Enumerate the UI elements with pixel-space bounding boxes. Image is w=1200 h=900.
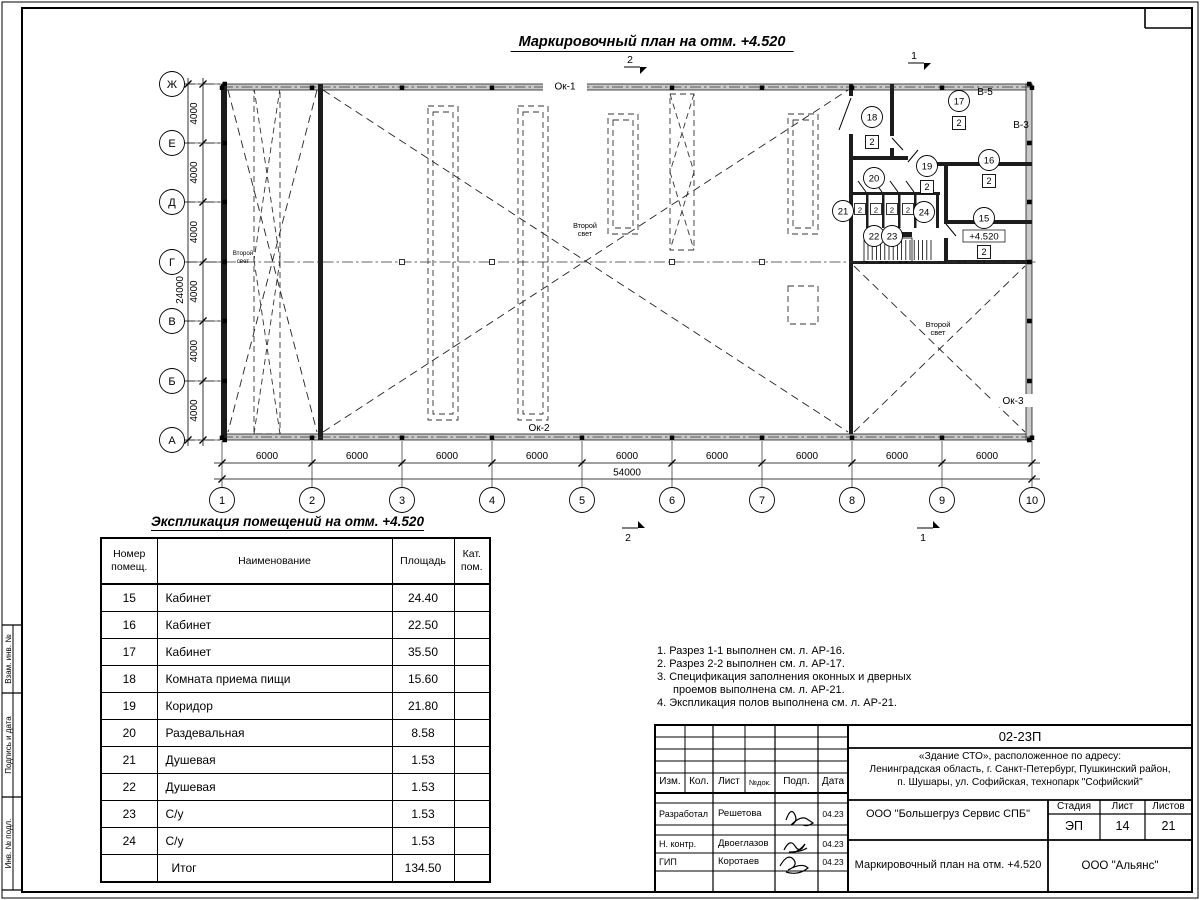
role-label: ГИП bbox=[656, 853, 715, 871]
room-number: 21 bbox=[838, 207, 849, 218]
sheet-value: 14 bbox=[1100, 819, 1145, 835]
role-name: Решетова bbox=[715, 803, 776, 825]
note-item: 2. Разрез 2-2 выполнен см. л. АР-17. bbox=[657, 658, 929, 671]
axis-label: 2 bbox=[309, 495, 315, 507]
room-number-cell: 17 bbox=[101, 639, 157, 666]
room-name-cell: Душевая bbox=[157, 747, 392, 774]
equipment-dashed-outlines bbox=[254, 88, 818, 434]
schedule-col-header: Номерпомещ. bbox=[101, 538, 157, 584]
column-marker bbox=[400, 86, 405, 91]
dim-label: 6000 bbox=[256, 451, 279, 462]
axis-label: 9 bbox=[939, 495, 945, 507]
room-schedule-table: Номерпомещ.НаименованиеПлощадьКат.пом. 1… bbox=[100, 537, 491, 883]
axis-label: 6 bbox=[669, 495, 675, 507]
section-mark-arrow bbox=[933, 521, 940, 528]
dim-label: 4000 bbox=[189, 220, 200, 243]
schedule-row: 19Коридор21.80 bbox=[101, 693, 490, 720]
dim-label: 6000 bbox=[886, 451, 909, 462]
section-mark-label: 2 bbox=[627, 54, 633, 66]
room-number-cell: 23 bbox=[101, 801, 157, 828]
room-number: 22 bbox=[869, 232, 880, 243]
dim-label: 4000 bbox=[189, 102, 200, 125]
axis-label: Г bbox=[169, 257, 175, 269]
column-marker bbox=[580, 436, 585, 441]
room-cat-cell bbox=[454, 801, 490, 828]
room-area-cell: 1.53 bbox=[392, 774, 454, 801]
column-marker bbox=[490, 436, 495, 441]
axis-label: Е bbox=[168, 138, 175, 150]
axis-label: Б bbox=[168, 376, 175, 388]
column-marker bbox=[310, 436, 315, 441]
room-cat-cell bbox=[454, 828, 490, 855]
window-label: Ок-2 bbox=[528, 423, 549, 434]
column-marker bbox=[1027, 438, 1032, 443]
room-area-cell: 24.40 bbox=[392, 584, 454, 612]
room-cat-cell bbox=[454, 720, 490, 747]
room-cat-cell bbox=[454, 639, 490, 666]
window-label: Ок-3 bbox=[1002, 396, 1023, 407]
col-list: Лист bbox=[713, 776, 745, 789]
room-number-cell bbox=[101, 855, 157, 883]
col-izm: Изм. bbox=[655, 776, 685, 789]
column-marker bbox=[1027, 260, 1032, 265]
room-name-cell: Душевая bbox=[157, 774, 392, 801]
room-name-cell: Комната приема пищи bbox=[157, 666, 392, 693]
column-marker bbox=[400, 436, 405, 441]
role-date: 04.23 bbox=[818, 835, 848, 853]
column-marker bbox=[760, 86, 765, 91]
room-category: 2 bbox=[874, 205, 878, 214]
window-label: Ок-1 bbox=[554, 82, 575, 93]
axis-label: 1 bbox=[219, 495, 225, 507]
axis-label: Д bbox=[168, 197, 176, 209]
dim-label: 4000 bbox=[189, 399, 200, 422]
schedule-col-header: Наименование bbox=[157, 538, 392, 584]
axis-label: А bbox=[168, 435, 176, 447]
room-area-cell: 1.53 bbox=[392, 747, 454, 774]
role-label: Н. контр. bbox=[656, 835, 715, 853]
role-name: Двоеглазов bbox=[715, 835, 776, 853]
room-number-cell: 19 bbox=[101, 693, 157, 720]
column-marker bbox=[223, 141, 228, 146]
column-marker-open bbox=[760, 260, 765, 265]
dim-total-label: 54000 bbox=[613, 468, 641, 479]
dim-label: 6000 bbox=[616, 451, 639, 462]
schedule-title: Экспликация помещений на отм. +4.520 bbox=[151, 514, 424, 531]
column-marker bbox=[940, 86, 945, 91]
room-area-cell: 1.53 bbox=[392, 801, 454, 828]
room-cat-cell bbox=[454, 774, 490, 801]
column-marker-open bbox=[400, 260, 405, 265]
room-number-cell: 15 bbox=[101, 584, 157, 612]
frame-side-label: Взам. инв. № bbox=[4, 627, 13, 691]
room-cat-cell bbox=[454, 666, 490, 693]
room-cat-cell bbox=[454, 584, 490, 612]
room-area-cell: 22.50 bbox=[392, 612, 454, 639]
section-mark-arrow bbox=[640, 67, 647, 74]
dim-label: 4000 bbox=[189, 339, 200, 362]
project-line-1: «Здание СТО», расположенное по адресу: bbox=[848, 751, 1192, 764]
room-number-cell: 16 bbox=[101, 612, 157, 639]
plan-title: Маркировочный план на отм. +4.520 bbox=[511, 34, 794, 52]
section-mark-label: 2 bbox=[625, 532, 631, 544]
schedule-row: 20Раздевальная8.58 bbox=[101, 720, 490, 747]
dim-label: 6000 bbox=[796, 451, 819, 462]
room-cat-cell bbox=[454, 747, 490, 774]
vent-label: В-5 bbox=[977, 87, 993, 98]
note-item: 4. Экспликация полов выполнена см. л. АР… bbox=[657, 697, 929, 710]
stage-label: Стадия bbox=[1048, 801, 1100, 814]
room-number: 23 bbox=[887, 232, 898, 243]
room-category: 2 bbox=[981, 247, 986, 257]
room-name-cell: Раздевальная bbox=[157, 720, 392, 747]
second-light-label: свет bbox=[237, 258, 250, 265]
axis-label: 8 bbox=[849, 495, 855, 507]
room-category: 2 bbox=[956, 118, 961, 128]
section-mark-arrow bbox=[638, 521, 645, 528]
room-category: 2 bbox=[858, 205, 862, 214]
room-area-cell: 1.53 bbox=[392, 828, 454, 855]
level-mark: +4.520 bbox=[969, 232, 998, 243]
schedule-col-header: Кат.пом. bbox=[454, 538, 490, 584]
col-kol: Кол. bbox=[685, 776, 713, 789]
column-marker bbox=[850, 436, 855, 441]
org-name: ООО "Альянс" bbox=[1048, 859, 1192, 873]
sheets-label: Листов bbox=[1145, 801, 1192, 814]
section-mark-label: 1 bbox=[911, 50, 917, 62]
column-marker bbox=[223, 260, 228, 265]
sheets-value: 21 bbox=[1145, 819, 1192, 835]
dim-label: 6000 bbox=[976, 451, 999, 462]
column-marker bbox=[223, 82, 228, 87]
axis-label: 5 bbox=[579, 495, 585, 507]
col-ndoc: №док. bbox=[745, 778, 775, 787]
axis-label: 7 bbox=[759, 495, 765, 507]
room-name-cell: С/у bbox=[157, 828, 392, 855]
room-name-cell: С/у bbox=[157, 801, 392, 828]
stage-value: ЭП bbox=[1048, 819, 1100, 835]
column-marker bbox=[223, 379, 228, 384]
role-name: Коротаев bbox=[715, 853, 776, 871]
signature-icon bbox=[780, 811, 813, 873]
project-line-2: Ленинградская область, г. Санкт-Петербур… bbox=[848, 764, 1192, 777]
column-marker bbox=[223, 438, 228, 443]
room-cat-cell bbox=[454, 693, 490, 720]
column-marker-open bbox=[490, 260, 495, 265]
frame-side-label: Инв. № подл. bbox=[4, 799, 13, 888]
column-marker bbox=[760, 436, 765, 441]
second-light-label: свет bbox=[930, 328, 946, 337]
schedule-row: 21Душевая1.53 bbox=[101, 747, 490, 774]
dim-label: 6000 bbox=[526, 451, 549, 462]
column-marker bbox=[310, 86, 315, 91]
drawing-sheet: 6000600060006000600060006000600060005400… bbox=[0, 0, 1200, 900]
doc-number: 02-23П bbox=[848, 729, 1192, 745]
schedule-row: 22Душевая1.53 bbox=[101, 774, 490, 801]
room-area-cell: 134.50 bbox=[392, 855, 454, 883]
column-marker bbox=[1027, 319, 1032, 324]
room-number-cell: 22 bbox=[101, 774, 157, 801]
schedule-header: Номерпомещ.НаименованиеПлощадьКат.пом. bbox=[101, 538, 490, 584]
room-number-cell: 21 bbox=[101, 747, 157, 774]
note-item: 3. Спецификация заполнения оконных и две… bbox=[657, 671, 929, 697]
column-marker bbox=[1027, 200, 1032, 205]
room-name-cell: Коридор bbox=[157, 693, 392, 720]
col-podp: Подп. bbox=[775, 776, 818, 789]
room-area-cell: 35.50 bbox=[392, 639, 454, 666]
room-category: 2 bbox=[869, 137, 874, 147]
room-category: 2 bbox=[924, 182, 929, 192]
axis-label: Ж bbox=[167, 79, 177, 91]
column-marker bbox=[490, 86, 495, 91]
room-category: 2 bbox=[906, 205, 910, 214]
room-number-cell: 20 bbox=[101, 720, 157, 747]
col-data: Дата bbox=[818, 776, 848, 789]
column-marker bbox=[1027, 141, 1032, 146]
column-marker bbox=[850, 86, 855, 91]
dim-label: 6000 bbox=[436, 451, 459, 462]
column-marker bbox=[670, 86, 675, 91]
room-name-cell: Итог bbox=[157, 855, 392, 883]
room-area-cell: 8.58 bbox=[392, 720, 454, 747]
room-name-cell: Кабинет bbox=[157, 584, 392, 612]
schedule-col-header: Площадь bbox=[392, 538, 454, 584]
role-date: 04.23 bbox=[818, 853, 848, 871]
schedule-row: 17Кабинет35.50 bbox=[101, 639, 490, 666]
dim-total-label: 24000 bbox=[175, 276, 186, 304]
room-number: 17 bbox=[954, 97, 965, 108]
room-cat-cell bbox=[454, 612, 490, 639]
schedule-row: 18Комната приема пищи15.60 bbox=[101, 666, 490, 693]
dim-label: 4000 bbox=[189, 280, 200, 303]
column-marker bbox=[223, 319, 228, 324]
schedule-row: 24С/у1.53 bbox=[101, 828, 490, 855]
axis-centerlines bbox=[184, 84, 1038, 440]
room-number: 15 bbox=[979, 214, 990, 225]
room-name-cell: Кабинет bbox=[157, 612, 392, 639]
room-cat-cell bbox=[454, 855, 490, 883]
sheet-label: Лист bbox=[1100, 801, 1145, 814]
section-mark-label: 1 bbox=[920, 532, 926, 544]
schedule-row: 15Кабинет24.40 bbox=[101, 584, 490, 612]
dim-label: 6000 bbox=[346, 451, 369, 462]
note-item: 1. Разрез 1-1 выполнен см. л. АР-16. bbox=[657, 645, 929, 658]
role-date: 04.23 bbox=[818, 803, 848, 825]
vent-label: В-3 bbox=[1013, 120, 1029, 131]
company-name: ООО "Большегруз Сервис СПБ" bbox=[848, 808, 1048, 821]
room-number: 18 bbox=[867, 113, 878, 124]
drawing-name: Маркировочный план на отм. +4.520 bbox=[848, 859, 1048, 873]
room-number-cell: 24 bbox=[101, 828, 157, 855]
room-name-cell: Кабинет bbox=[157, 639, 392, 666]
room-category: 2 bbox=[890, 205, 894, 214]
column-marker-open bbox=[670, 260, 675, 265]
room-number: 19 bbox=[922, 162, 933, 173]
column-marker bbox=[223, 200, 228, 205]
room-area-cell: 21.80 bbox=[392, 693, 454, 720]
second-light-label: Второй bbox=[233, 250, 254, 257]
notes-list: 1. Разрез 1-1 выполнен см. л. АР-16.2. Р… bbox=[657, 645, 929, 710]
axis-label: В bbox=[168, 316, 175, 328]
schedule-row: Итог134.50 bbox=[101, 855, 490, 883]
axis-label: 4 bbox=[489, 495, 495, 507]
room-number: 20 bbox=[869, 174, 880, 185]
room-category: 2 bbox=[986, 176, 991, 186]
section-mark-arrow bbox=[924, 63, 931, 70]
column-marker bbox=[940, 436, 945, 441]
room-number: 24 bbox=[919, 208, 930, 219]
axis-label: 3 bbox=[399, 495, 405, 507]
column-marker bbox=[1027, 82, 1032, 87]
project-line-3: п. Шушары, ул. Софийская, технопарк "Соф… bbox=[848, 777, 1192, 790]
dim-label: 6000 bbox=[706, 451, 729, 462]
room-number-cell: 18 bbox=[101, 666, 157, 693]
room-number: 16 bbox=[984, 156, 995, 167]
schedule-row: 16Кабинет22.50 bbox=[101, 612, 490, 639]
dim-label: 4000 bbox=[189, 161, 200, 184]
frame-side-label: Подпись и дата bbox=[4, 695, 13, 795]
role-label: Разработал bbox=[656, 803, 715, 825]
column-marker bbox=[670, 436, 675, 441]
axis-label: 10 bbox=[1026, 495, 1038, 507]
plan-generated-layer: 6000600060006000600060006000600060005400… bbox=[160, 50, 1045, 544]
room-area-cell: 15.60 bbox=[392, 666, 454, 693]
schedule-row: 23С/у1.53 bbox=[101, 801, 490, 828]
column-marker bbox=[1027, 379, 1032, 384]
second-light-label: свет bbox=[578, 229, 593, 238]
